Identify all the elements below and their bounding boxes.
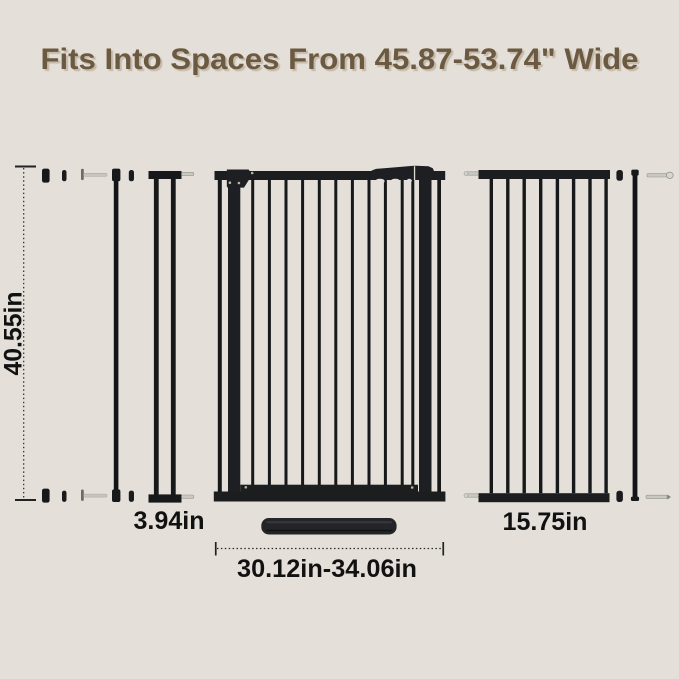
svg-text:30.12in-34.06in: 30.12in-34.06in	[237, 555, 417, 583]
svg-text:40.55in: 40.55in	[0, 292, 28, 376]
svg-text:3.94in: 3.94in	[134, 507, 205, 535]
svg-text:15.75in: 15.75in	[503, 508, 588, 536]
svg-text:Fits Into Spaces From 45.87-53: Fits Into Spaces From 45.87-53.74" Wide	[41, 43, 639, 76]
